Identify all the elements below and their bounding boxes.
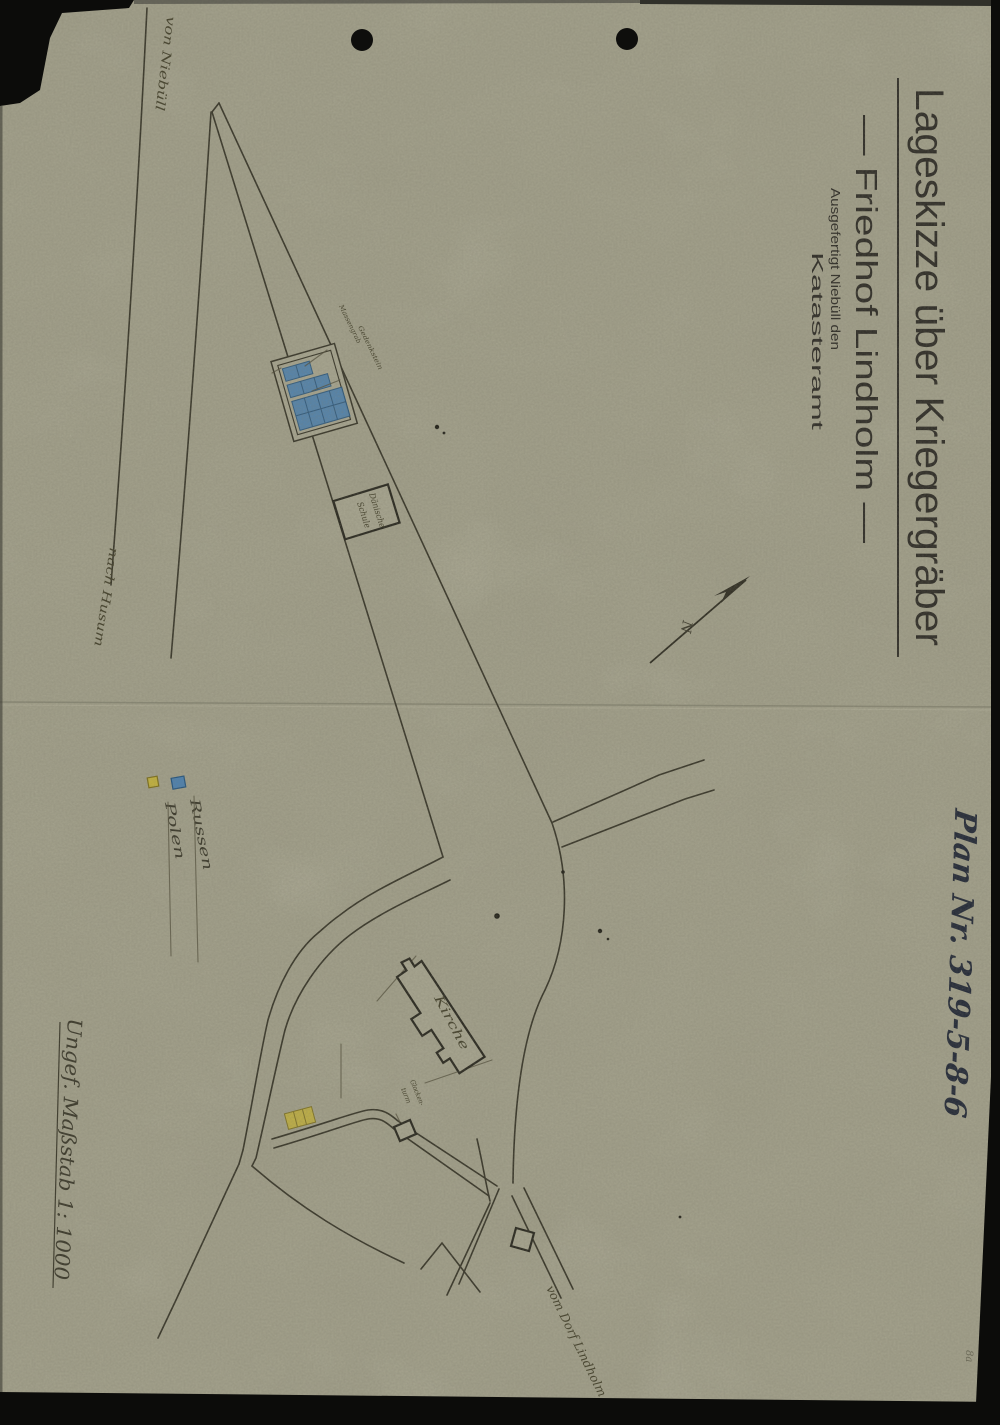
left-edge-shadow (0, 106, 3, 1392)
scanned-map-page: Massengrab Gedenkstein Dänische Schule K… (0, 0, 1000, 1425)
map-sketch-svg: Massengrab Gedenkstein Dänische Schule K… (0, 0, 1000, 1425)
punch-hole-right (616, 28, 638, 50)
punch-hole-left (351, 29, 373, 51)
film-grain-light (0, 0, 1000, 1425)
